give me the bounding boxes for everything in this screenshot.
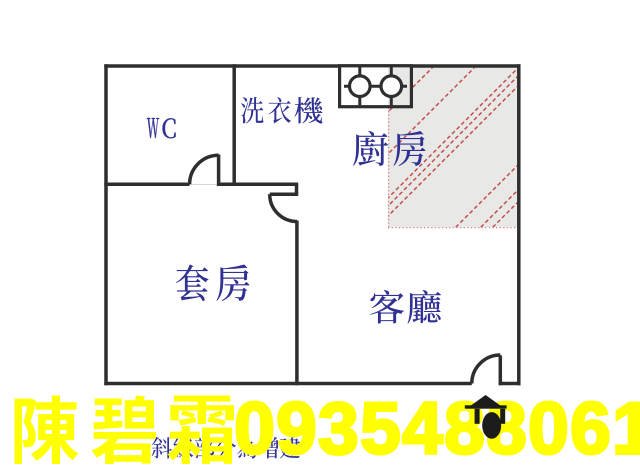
svg-text:0935488061: 0935488061 bbox=[234, 389, 640, 470]
